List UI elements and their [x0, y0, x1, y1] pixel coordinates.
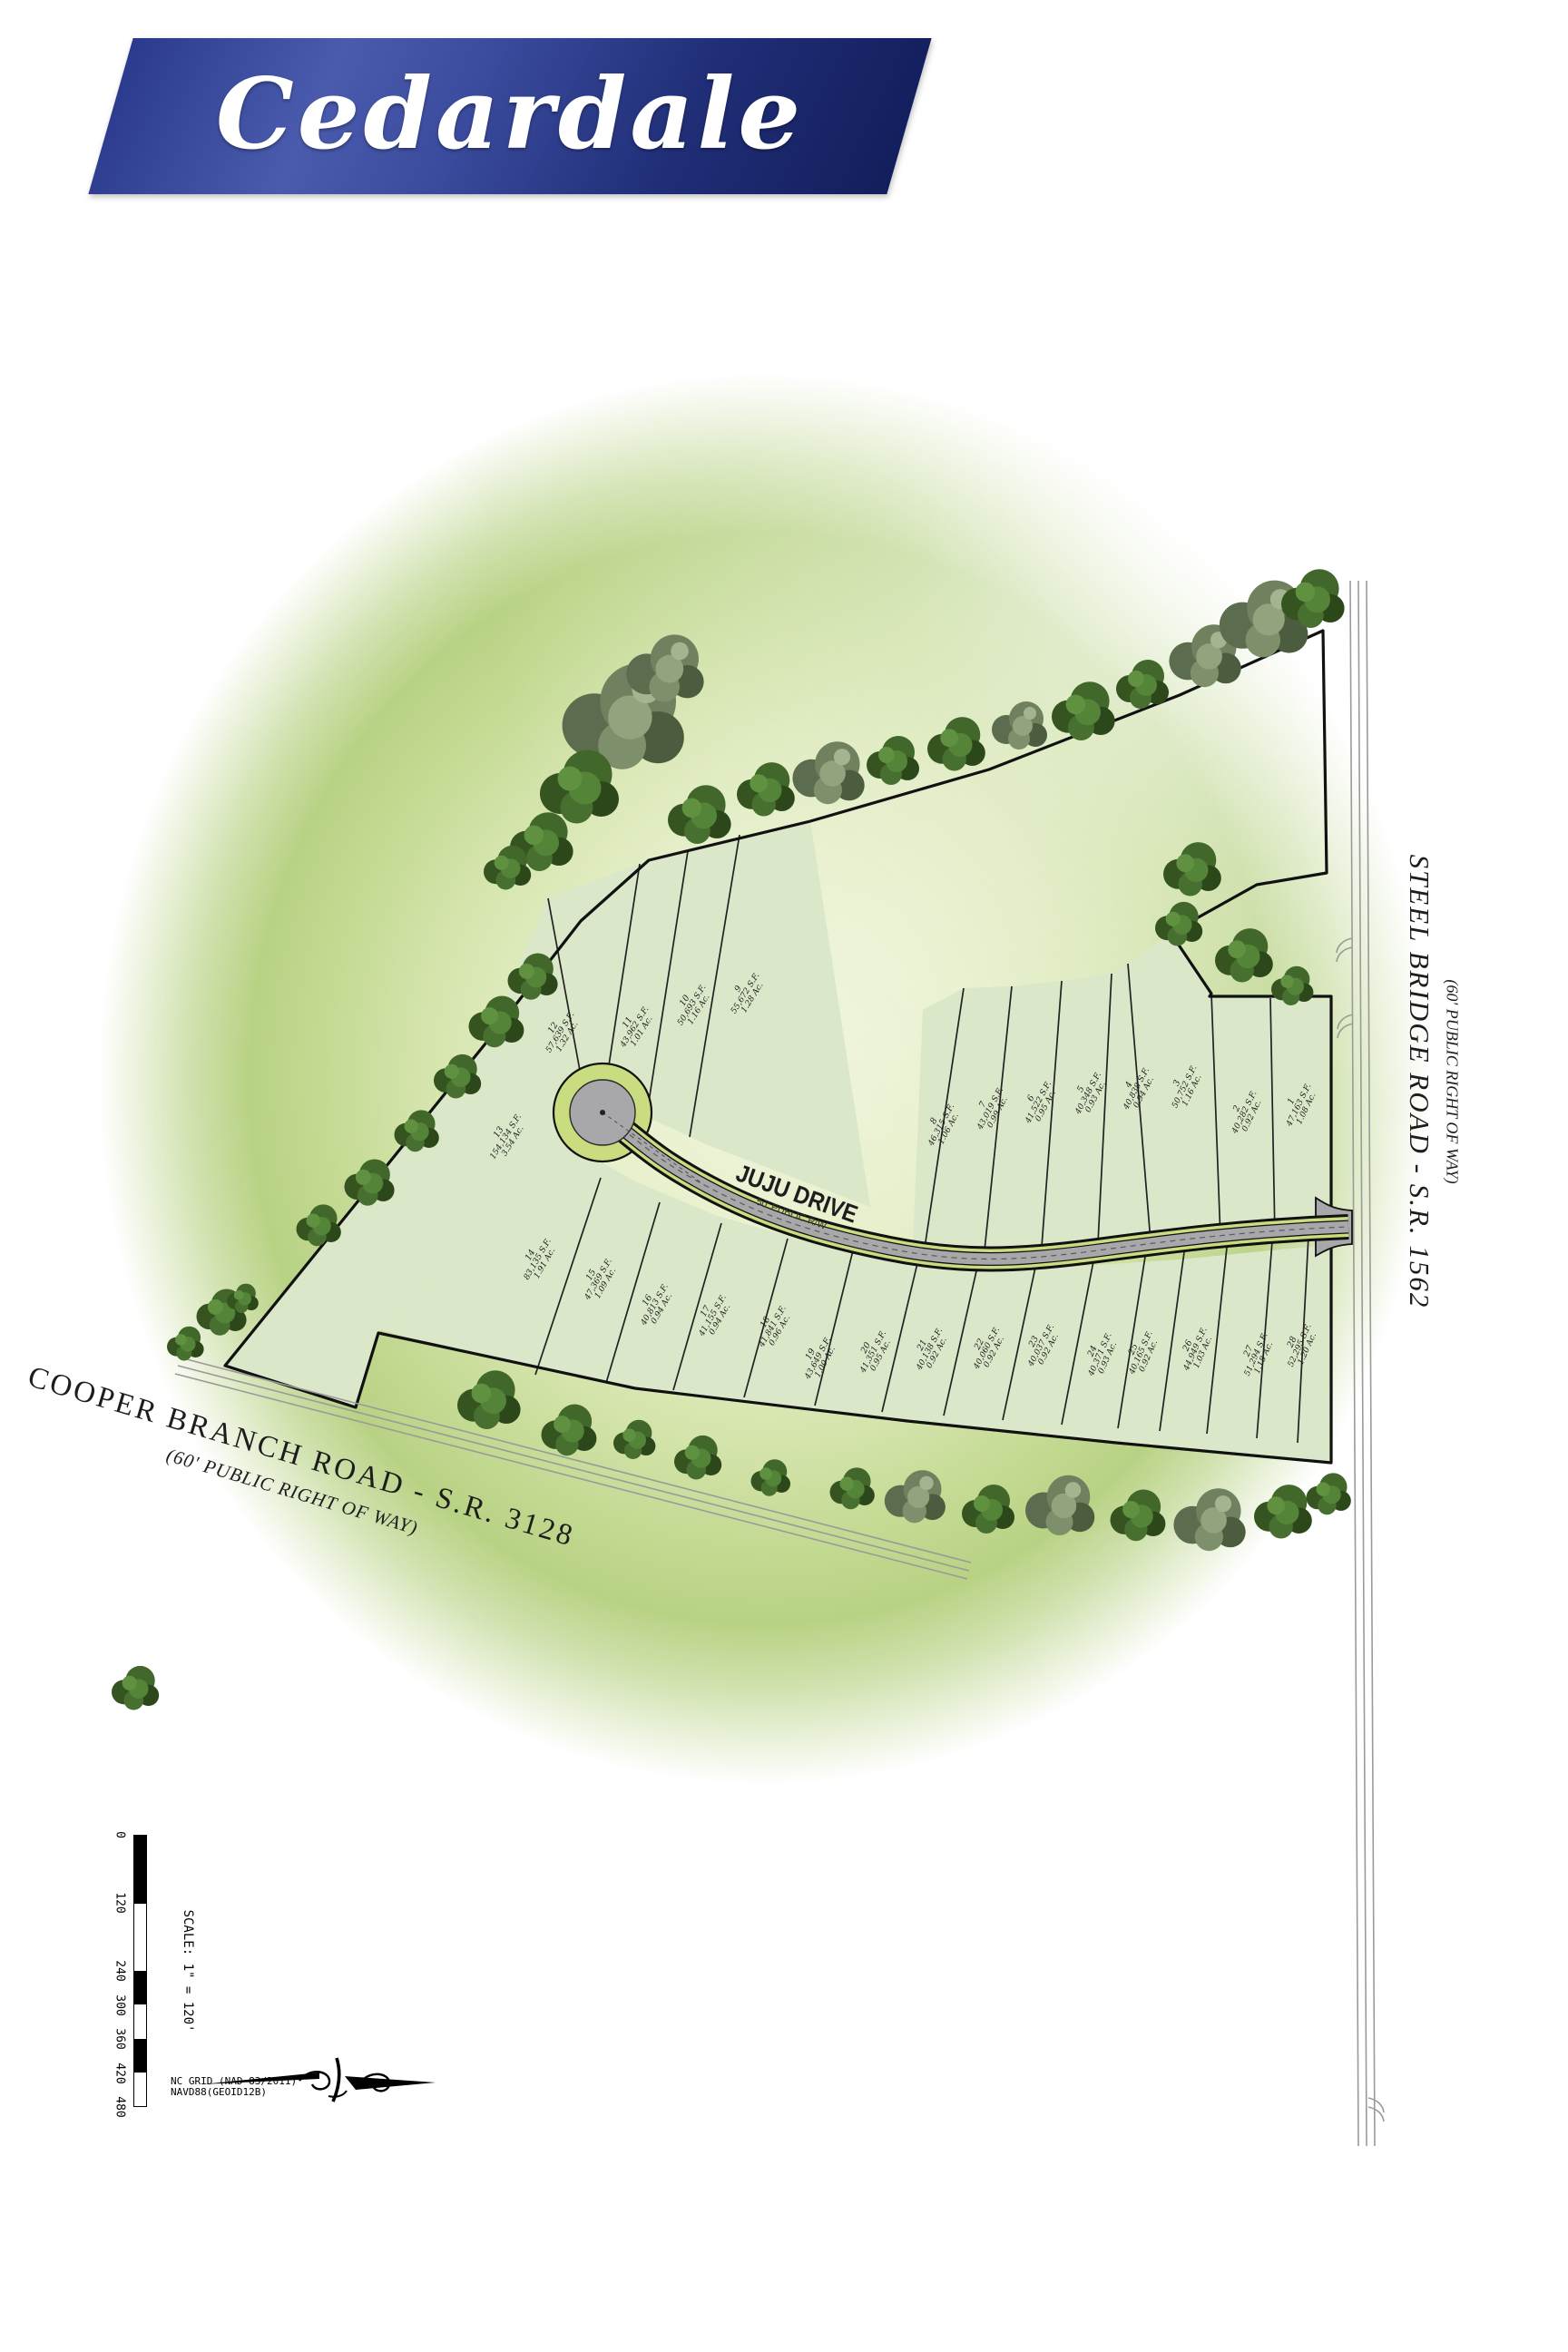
scale-text: SCALE: 1" = 120': [181, 1910, 195, 2033]
public-road-lines-shape: [1358, 581, 1367, 2146]
tree-canopies-shape: [613, 1420, 655, 1459]
scale-tick: 480: [113, 2096, 127, 2117]
tree-canopies-shape: [540, 750, 619, 824]
cedardale-logo-text: Cedardale: [111, 38, 909, 194]
grid-datum-line2: NAVD88(GEOID12B): [171, 2087, 297, 2098]
scale-tick: 240: [113, 1960, 127, 1981]
scale-bar-segment: [134, 1904, 146, 1972]
tree-canopies-shape: [674, 1436, 721, 1480]
road-rw-note-steel: (60' PUBLIC RIGHT OF WAY): [1443, 979, 1462, 1183]
public-road-lines-shape: [1337, 947, 1352, 962]
tree-canopies-shape: [112, 1666, 159, 1710]
scale-bar-segment: [134, 2073, 146, 2106]
tree-canopies-shape: [792, 741, 864, 804]
tree-canopies-shape: [434, 1054, 481, 1099]
tree-canopies-shape: [167, 1327, 204, 1361]
scale-tick: 0: [113, 1831, 127, 1838]
tree-canopies-shape: [345, 1159, 395, 1205]
tree-canopies-shape: [1163, 842, 1221, 896]
tree-canopies-shape: [1173, 1488, 1245, 1551]
tree-canopies-shape: [626, 634, 703, 701]
scale-bar-segment: [134, 2039, 146, 2073]
road-name-steel-bridge: STEEL BRIDGE ROAD - S.R. 1562: [1403, 855, 1436, 1309]
scale-bar-segment: [134, 1971, 146, 2004]
tree-canopies-shape: [1025, 1475, 1094, 1535]
juju-drive-road-shape: [600, 1110, 605, 1115]
public-road-lines-shape: [1350, 581, 1358, 2146]
public-road-lines-shape: [1338, 1024, 1353, 1038]
tree-canopies-shape: [962, 1485, 1014, 1534]
tree-canopies-shape: [1307, 1473, 1351, 1514]
tree-canopies-shape: [668, 785, 731, 844]
plat-page: JUJU DRIVE 50' PUBLIC R/W COOPER BRANCH …: [0, 0, 1568, 2352]
scale-bar: [133, 1835, 147, 2107]
scale-tick: 420: [113, 2063, 127, 2083]
scale-bar-segment: [134, 1836, 146, 1904]
tree-canopies-shape: [297, 1204, 341, 1246]
public-road-lines-shape: [1367, 581, 1375, 2146]
tree-canopies-shape: [457, 1370, 521, 1429]
scale-tick: 120: [113, 1892, 127, 1913]
public-road-lines-shape: [1368, 2107, 1384, 2122]
tree-canopies-shape: [1116, 660, 1169, 709]
scale-tick: 300: [113, 1994, 127, 2015]
tree-canopies-shape: [737, 762, 795, 816]
tree-canopies-shape: [484, 846, 531, 890]
tree-canopies-shape: [885, 1470, 946, 1523]
tree-canopies-shape: [469, 996, 524, 1048]
tree-canopies-shape: [1254, 1485, 1312, 1538]
tree-canopies-shape: [927, 717, 985, 770]
tree-canopies-shape: [1052, 681, 1115, 740]
tree-canopies-shape: [395, 1110, 439, 1151]
tree-canopies-shape: [1215, 928, 1273, 982]
tree-canopies-shape: [992, 701, 1047, 750]
tree-canopies-shape: [542, 1405, 597, 1456]
scale-bar-segment: [134, 2004, 146, 2038]
grid-datum-note: NC GRID (NAD 83/2011) NAVD88(GEOID12B): [171, 2076, 297, 2098]
tree-canopies-shape: [830, 1467, 875, 1509]
scale-tick: 360: [113, 2028, 127, 2049]
tree-canopies-shape: [867, 736, 919, 785]
tree-canopies-shape: [751, 1459, 791, 1496]
north-arrow-icon-shape: [333, 2058, 339, 2102]
tree-canopies-shape: [1111, 1490, 1166, 1542]
